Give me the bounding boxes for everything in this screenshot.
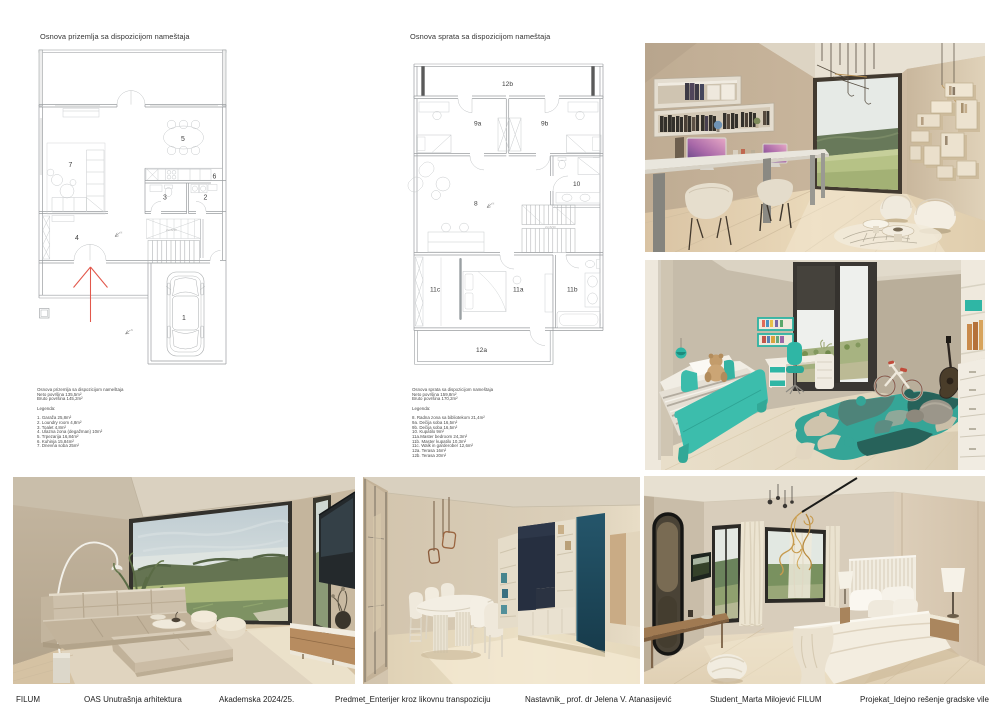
svg-text:8: 8	[474, 201, 478, 208]
svg-text:5: 5	[181, 136, 185, 143]
svg-text:6: 6	[213, 174, 217, 181]
svg-text:2x16/30: 2x16/30	[545, 225, 556, 229]
svg-text:3: 3	[163, 195, 167, 202]
svg-text:10: 10	[573, 181, 581, 188]
svg-text:N: N	[121, 232, 123, 235]
svg-text:1: 1	[182, 315, 186, 322]
svg-text:11b: 11b	[567, 287, 578, 294]
svg-text:9b: 9b	[541, 121, 549, 128]
svg-text:11c: 11c	[430, 287, 441, 294]
svg-text:7: 7	[69, 162, 73, 169]
svg-text:N: N	[493, 203, 495, 206]
svg-text:12a: 12a	[476, 347, 487, 354]
svg-text:4: 4	[75, 235, 79, 242]
svg-text:2x16/30: 2x16/30	[166, 228, 177, 232]
svg-text:11a: 11a	[513, 287, 524, 294]
svg-text:N: N	[131, 329, 133, 332]
svg-text:2: 2	[204, 195, 208, 202]
svg-text:9a: 9a	[474, 121, 482, 128]
svg-text:12b: 12b	[502, 81, 513, 88]
